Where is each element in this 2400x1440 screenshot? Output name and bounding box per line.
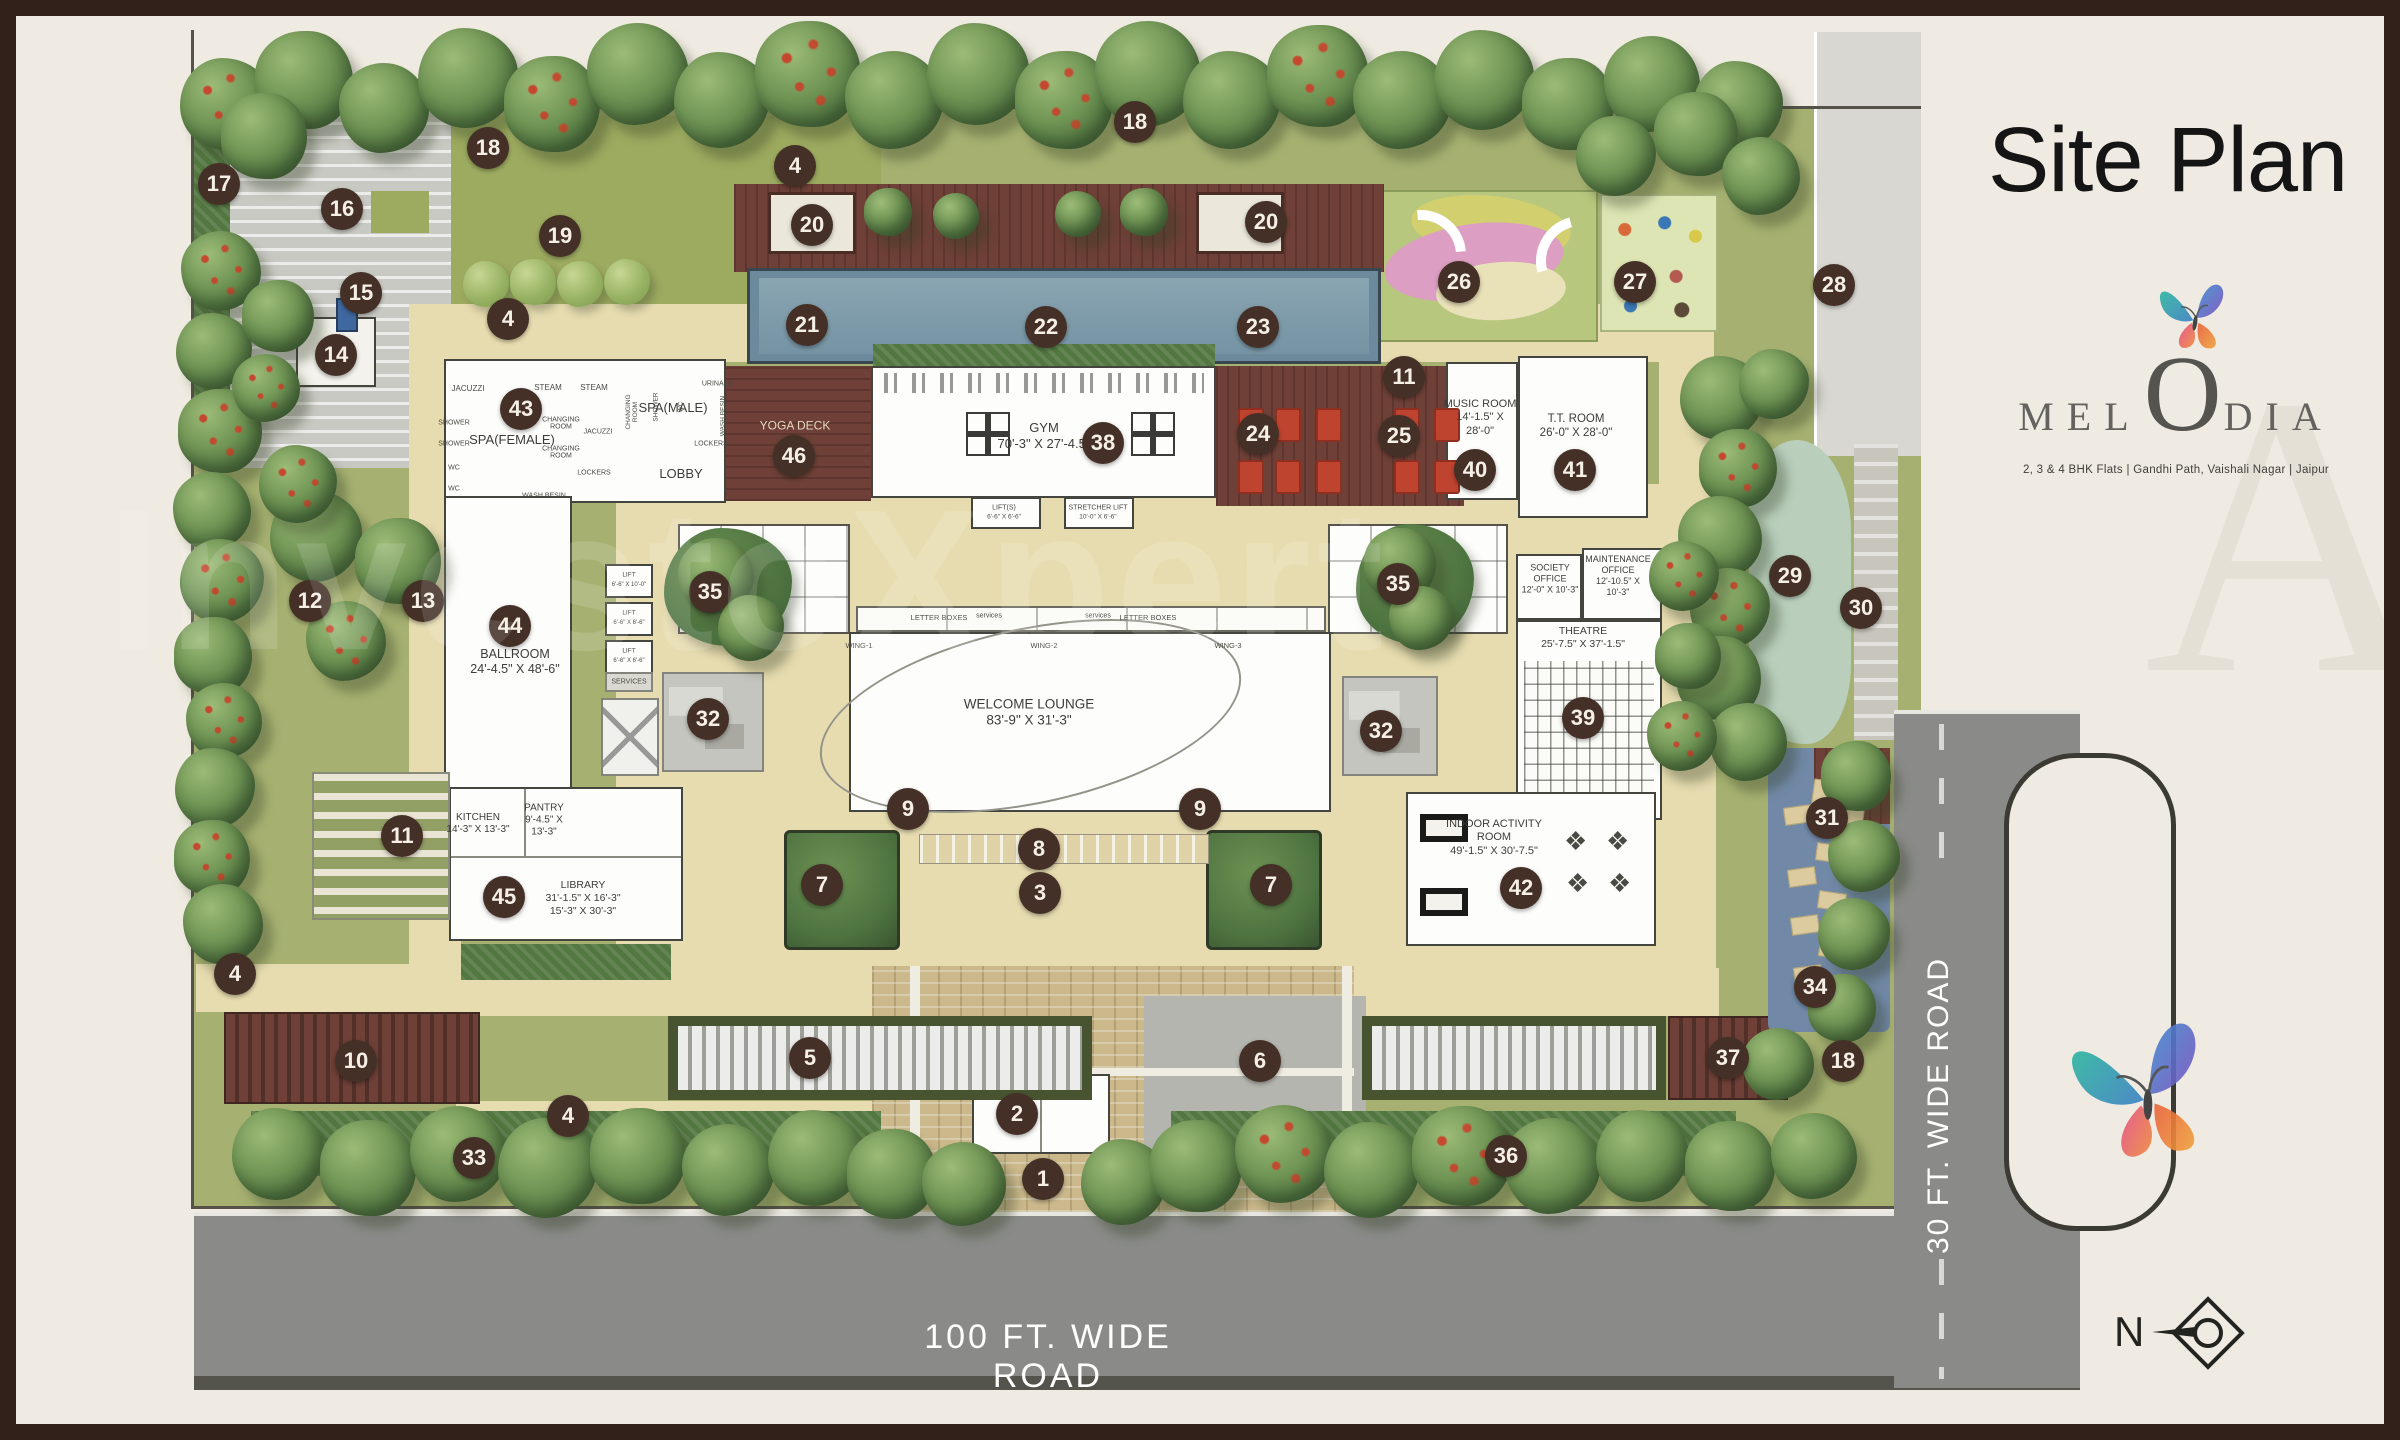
tree bbox=[1267, 25, 1369, 127]
plan-marker-11: 11 bbox=[381, 815, 423, 857]
small-label: LETTER BOXES bbox=[1120, 614, 1177, 622]
deck-chair bbox=[1316, 460, 1342, 494]
tree bbox=[1235, 1105, 1333, 1203]
small-label: WASH BESIN bbox=[721, 395, 728, 437]
plan-marker-17: 17 bbox=[198, 163, 240, 205]
plan-marker-28: 28 bbox=[1813, 264, 1855, 306]
plan-marker-21: 21 bbox=[786, 304, 828, 346]
room-label-indoor-activity-room: INDOOR ACTIVITYROOM49'-1.5" X 30'-7.5" bbox=[1446, 818, 1542, 858]
plan-marker-13: 13 bbox=[402, 580, 444, 622]
tree bbox=[504, 56, 600, 152]
plan-marker-31: 31 bbox=[1806, 797, 1848, 839]
tree bbox=[590, 1108, 686, 1204]
trellis-patch bbox=[371, 191, 429, 233]
plan-marker-15: 15 bbox=[340, 272, 382, 314]
plan-marker-33: 33 bbox=[453, 1137, 495, 1179]
deck-chair bbox=[1275, 408, 1301, 442]
small-label: LIFT bbox=[622, 649, 635, 656]
kpl-divider-h bbox=[451, 856, 681, 858]
tree bbox=[1685, 1121, 1775, 1211]
plan-marker-8: 8 bbox=[1018, 828, 1060, 870]
bush bbox=[510, 259, 556, 305]
bottom-road: 100 FT. WIDE ROAD bbox=[194, 1212, 2080, 1390]
deck-chair bbox=[1275, 460, 1301, 494]
room-label-pantry: PANTRY9'-4.5" X13'-3" bbox=[524, 803, 564, 840]
plan-marker-20: 20 bbox=[791, 204, 833, 246]
tree bbox=[1150, 1120, 1242, 1212]
game-table-icon: ❖ bbox=[1608, 868, 1631, 899]
tree bbox=[864, 188, 912, 236]
tree bbox=[755, 21, 861, 127]
plan-marker-10: 10 bbox=[335, 1040, 377, 1082]
small-label: JACUZZI bbox=[584, 428, 613, 435]
small-label: services bbox=[1085, 612, 1111, 619]
tree bbox=[320, 1120, 416, 1216]
room-label-spa-male: SPA(MALE) bbox=[638, 400, 707, 416]
plan-marker-19: 19 bbox=[539, 215, 581, 257]
plan-marker-18: 18 bbox=[467, 127, 509, 169]
room-label-society-office: SOCIETYOFFICE12'-0" X 10'-3" bbox=[1522, 563, 1579, 596]
bottom-road-label: 100 FT. WIDE ROAD bbox=[868, 1318, 1228, 1396]
tree bbox=[922, 1142, 1006, 1226]
plan-marker-45: 45 bbox=[483, 876, 525, 918]
decor-butterfly-icon bbox=[2035, 993, 2257, 1189]
room-label-yoga-deck: YOGA DECK bbox=[760, 419, 831, 434]
yoga-deck bbox=[719, 366, 871, 501]
room-label-ballroom: BALLROOM24'-4.5" X 48'-6" bbox=[470, 647, 559, 678]
plan-marker-25: 25 bbox=[1378, 415, 1420, 457]
plan-marker-37: 37 bbox=[1707, 1037, 1749, 1079]
pool-table-2 bbox=[1420, 888, 1468, 916]
game-table-icon: ❖ bbox=[1564, 826, 1587, 857]
tree bbox=[232, 354, 300, 422]
small-label: SHOWER bbox=[438, 419, 470, 426]
plan-marker-9: 9 bbox=[887, 788, 929, 830]
brand-tagline: 2, 3 & 4 BHK Flats | Gandhi Path, Vaisha… bbox=[2001, 464, 2351, 476]
plan-marker-7: 7 bbox=[801, 864, 843, 906]
stair-core bbox=[601, 698, 659, 776]
room-label-maintenance-office: MAINTENANCEOFFICE12'-10.5" X10'-3" bbox=[1585, 554, 1651, 598]
plan-marker-32: 32 bbox=[1360, 710, 1402, 752]
plan-marker-4: 4 bbox=[214, 953, 256, 995]
east-walkway bbox=[1814, 32, 1921, 456]
north-arrow-circle bbox=[2193, 1318, 2223, 1348]
room-label-music-room: MUSIC ROOM14'-1.5" X28'-0" bbox=[1444, 398, 1517, 438]
brand-pre: MEL bbox=[2018, 393, 2141, 440]
site-plan-page: 100 FT. WIDE ROAD 30 FT. WIDE ROAD A Sit… bbox=[0, 0, 2400, 1440]
game-table-icon: ❖ bbox=[1606, 826, 1629, 857]
road-centerline-top bbox=[1939, 724, 1944, 864]
small-label: LIFT bbox=[622, 611, 635, 618]
small-label: SHOWER bbox=[654, 392, 661, 421]
small-label: STEAM bbox=[580, 384, 608, 392]
plan-marker-4: 4 bbox=[547, 1095, 589, 1137]
plan-marker-44: 44 bbox=[489, 605, 531, 647]
plan-marker-7: 7 bbox=[1250, 864, 1292, 906]
brand-logo: MELODIA bbox=[2016, 352, 2336, 440]
tree bbox=[339, 63, 429, 153]
stepping-stone bbox=[1787, 866, 1817, 888]
small-label: CHANGING ROOM bbox=[626, 391, 640, 433]
tree bbox=[1647, 701, 1717, 771]
plan-marker-20: 20 bbox=[1245, 201, 1287, 243]
tree bbox=[682, 1124, 774, 1216]
plan-marker-4: 4 bbox=[487, 298, 529, 340]
plan-marker-30: 30 bbox=[1840, 587, 1882, 629]
tree bbox=[1709, 703, 1787, 781]
right-road-label: 30 FT. WIDE ROAD bbox=[1922, 864, 1956, 1254]
small-label: CHANGING ROOM bbox=[539, 417, 583, 432]
plan-marker-32: 32 bbox=[687, 698, 729, 740]
hedge-library bbox=[461, 944, 671, 980]
plan-marker-4: 4 bbox=[774, 145, 816, 187]
small-label: WC bbox=[448, 485, 460, 492]
plan-marker-22: 22 bbox=[1025, 306, 1067, 348]
plan-marker-39: 39 bbox=[1562, 697, 1604, 739]
small-label: LOCKERS bbox=[694, 440, 727, 447]
tree bbox=[1120, 188, 1168, 236]
small-label: JACUZZI bbox=[452, 385, 485, 393]
small-label: 6'-6" X 10'-0" bbox=[612, 582, 647, 588]
room-label-gym: GYM70'-3" X 27'-4.5" bbox=[998, 420, 1091, 452]
small-label: STEAM bbox=[534, 384, 562, 392]
small-label: LIFT(S) bbox=[992, 504, 1016, 511]
small-label: 6'-6" X 6'-6" bbox=[613, 620, 644, 626]
brand-o: O bbox=[2144, 352, 2222, 438]
plan-marker-27: 27 bbox=[1614, 261, 1656, 303]
room-label-theatre: THEATRE25'-7.5" X 37'-1.5" bbox=[1541, 625, 1625, 651]
small-label: 10'-0" X 6'-6" bbox=[1079, 515, 1116, 522]
gym-machine-right bbox=[1131, 412, 1175, 456]
plan-marker-1: 1 bbox=[1022, 1158, 1064, 1200]
plan-marker-12: 12 bbox=[289, 580, 331, 622]
road-centerline-bottom bbox=[1939, 1259, 1944, 1379]
tree bbox=[1742, 1028, 1814, 1100]
small-label: URINALS bbox=[702, 380, 732, 387]
small-label: WASH BESIN bbox=[522, 492, 566, 499]
entry-steps bbox=[919, 834, 1209, 864]
deck-chair bbox=[1238, 460, 1264, 494]
tree bbox=[221, 93, 307, 179]
tree bbox=[242, 280, 314, 352]
plan-marker-40: 40 bbox=[1454, 449, 1496, 491]
tree bbox=[186, 683, 262, 759]
small-label: services bbox=[976, 612, 1002, 619]
plan-marker-38: 38 bbox=[1082, 422, 1124, 464]
small-label: LOCKERS bbox=[577, 469, 610, 476]
bush bbox=[557, 261, 603, 307]
play-equipment-area bbox=[1600, 194, 1718, 332]
room-label-welcome-lounge: WELCOME LOUNGE83'-9" X 31'-3" bbox=[964, 697, 1095, 730]
plan-marker-36: 36 bbox=[1485, 1135, 1527, 1177]
plan-marker-43: 43 bbox=[500, 388, 542, 430]
plan-marker-3: 3 bbox=[1019, 872, 1061, 914]
plan-marker-41: 41 bbox=[1554, 449, 1596, 491]
north-label: N bbox=[2114, 1308, 2144, 1356]
tree bbox=[173, 472, 251, 550]
plan-marker-23: 23 bbox=[1237, 306, 1279, 348]
plan-marker-26: 26 bbox=[1438, 261, 1480, 303]
path-bottom-east bbox=[1346, 968, 1719, 1016]
gym-equipment-row bbox=[884, 373, 1204, 393]
small-label: WC bbox=[448, 464, 460, 471]
tree bbox=[183, 884, 263, 964]
plan-marker-35: 35 bbox=[1377, 563, 1419, 605]
tree bbox=[933, 193, 979, 239]
slatted-deck-west bbox=[312, 772, 450, 920]
small-label: WING-3 bbox=[1214, 642, 1241, 650]
small-label: 6'-6" X 6'-6" bbox=[613, 658, 644, 664]
boundary-west bbox=[191, 30, 194, 1208]
small-label: LETTER BOXES bbox=[911, 614, 968, 622]
deck-chair bbox=[1394, 460, 1420, 494]
plan-marker-16: 16 bbox=[321, 188, 363, 230]
small-label: SHOWER bbox=[438, 440, 470, 447]
small-label: SERVICES bbox=[611, 678, 646, 685]
small-label: STRETCHER LIFT bbox=[1068, 504, 1127, 511]
plan-marker-2: 2 bbox=[996, 1093, 1038, 1135]
tree bbox=[1655, 623, 1721, 689]
small-label: WC bbox=[679, 402, 686, 413]
plan-marker-5: 5 bbox=[789, 1037, 831, 1079]
plan-marker-42: 42 bbox=[1500, 867, 1542, 909]
plan-marker-11: 11 bbox=[1383, 356, 1425, 398]
deck-chair bbox=[1316, 408, 1342, 442]
plan-marker-34: 34 bbox=[1794, 966, 1836, 1008]
parking-canopy-west bbox=[668, 1016, 1092, 1100]
plan-marker-9: 9 bbox=[1179, 788, 1221, 830]
plan-marker-24: 24 bbox=[1237, 413, 1279, 455]
small-label: WING-2 bbox=[1030, 642, 1057, 650]
game-table-icon: ❖ bbox=[1566, 868, 1589, 899]
small-label: WING-1 bbox=[845, 642, 872, 650]
plan-marker-18: 18 bbox=[1114, 101, 1156, 143]
plan-marker-35: 35 bbox=[689, 571, 731, 613]
tree bbox=[1699, 429, 1777, 507]
page-title: Site Plan bbox=[1988, 108, 2347, 213]
small-label: LIFT bbox=[622, 573, 635, 580]
room-label-kitchen: KITCHEN14'-3" X 13'-3" bbox=[446, 812, 509, 836]
plan-marker-29: 29 bbox=[1769, 555, 1811, 597]
plan-marker-14: 14 bbox=[315, 334, 357, 376]
brand-post: DIA bbox=[2224, 393, 2334, 440]
small-label: 6'-6" X 6'-6" bbox=[987, 515, 1021, 522]
room-label-lobby: LOBBY bbox=[659, 466, 702, 482]
kitchen-pantry-library-block bbox=[449, 787, 683, 941]
small-label: CHANGING ROOM bbox=[539, 446, 583, 461]
room-label-library: LIBRARY31'-1.5" X 16'-3"15'-3" X 30'-3" bbox=[545, 879, 620, 917]
plan-marker-18: 18 bbox=[1822, 1040, 1864, 1082]
plan-marker-46: 46 bbox=[773, 435, 815, 477]
parking-canopy-east bbox=[1362, 1016, 1666, 1100]
room-label-tt-room: T.T. ROOM26'-0" X 28'-0" bbox=[1540, 412, 1613, 440]
tree bbox=[1771, 1113, 1857, 1199]
stepping-stone bbox=[1790, 914, 1820, 936]
tree bbox=[1722, 137, 1800, 215]
plan-marker-6: 6 bbox=[1239, 1040, 1281, 1082]
